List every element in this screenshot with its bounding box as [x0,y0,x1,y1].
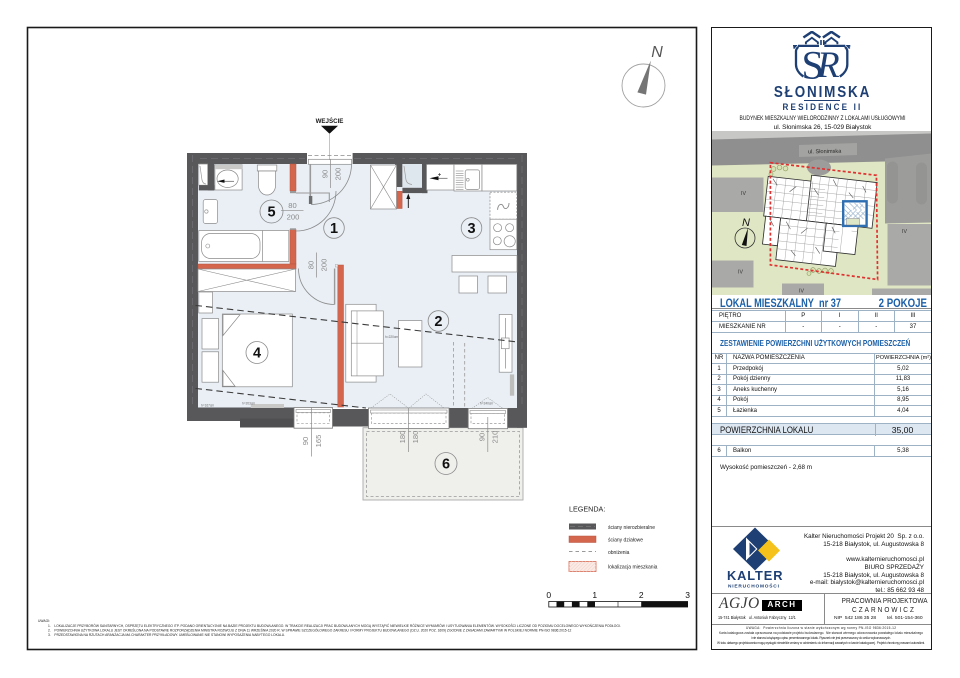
svg-text:obniżenia: obniżenia [608,550,630,556]
svg-text:N: N [651,44,663,61]
svg-text:ściany nierozbieralne: ściany nierozbieralne [608,525,655,531]
svg-text:IV: IV [799,288,804,294]
svg-text:80: 80 [306,261,315,269]
svg-text:UWAGA: Powierzchnia liczona w: UWAGA: Powierzchnia liczona w stanie wyk… [746,626,896,630]
svg-text:200: 200 [319,259,328,272]
svg-text:2: 2 [639,590,644,600]
svg-text:IV: IV [741,191,746,197]
svg-text:1: 1 [592,590,597,600]
svg-text:210: 210 [491,431,500,444]
svg-text:2. POWIERZCHNIA UŻYTKOWA LO: 2. POWIERZCHNIA UŻYTKOWA LOKALU JEST OKR… [48,628,572,633]
svg-text:200: 200 [333,168,342,181]
svg-text:WEJŚCIE: WEJŚCIE [316,118,344,125]
svg-text:h=240cm: h=240cm [480,402,494,406]
svg-text:1: 1 [330,221,338,237]
svg-text:R: R [816,45,840,85]
svg-text:IV: IV [902,229,907,235]
svg-text:h=203cm: h=203cm [242,402,256,406]
svg-text:200: 200 [287,212,300,221]
svg-text:180: 180 [411,431,420,444]
svg-text:90: 90 [301,437,310,445]
svg-text:LEGENDA:: LEGENDA: [569,505,605,514]
svg-text:ściany działowe: ściany działowe [608,538,643,544]
svg-text:N: N [742,217,750,229]
svg-text:Karta katalogowa została oprac: Karta katalogowa została opracowana na p… [719,631,923,635]
svg-text:W toku dalszego projektowania: W toku dalszego projektowania mogą wystą… [717,641,925,645]
svg-text:3. PRZEDSTAWIONA NA RZUTACH: 3. PRZEDSTAWIONA NA RZUTACH ARANŻACJA MA… [48,632,285,637]
svg-text:1. LOKALIZACJE PRZYBORÓW SA: 1. LOKALIZACJE PRZYBORÓW SANITARNYCH, OS… [48,623,621,628]
svg-text:ul. Słonimska: ul. Słonimska [808,148,842,155]
svg-text:90: 90 [478,433,487,441]
svg-text:h=167cm: h=167cm [201,404,215,408]
svg-text:165: 165 [314,435,323,448]
svg-text:2: 2 [434,314,442,330]
svg-text:3: 3 [685,590,690,600]
svg-text:5: 5 [267,205,275,221]
svg-text:i nie stanowi wiążącego opisu: i nie stanowi wiążącego opisu prezentowa… [751,636,891,640]
svg-text:80: 80 [288,201,296,210]
svg-text:6: 6 [442,457,450,473]
svg-text:lokalizacja mieszkania: lokalizacja mieszkania [608,565,658,571]
svg-text:h=220cm: h=220cm [385,335,399,339]
svg-text:0: 0 [546,590,551,600]
svg-text:UWAGI:: UWAGI: [38,619,50,623]
svg-text:180: 180 [398,431,407,444]
svg-text:3: 3 [467,221,475,237]
svg-text:IV: IV [738,269,743,275]
svg-text:NIERUCHOMOŚCI: NIERUCHOMOŚCI [728,583,780,590]
svg-text:4: 4 [253,346,261,362]
svg-text:90: 90 [320,170,329,178]
